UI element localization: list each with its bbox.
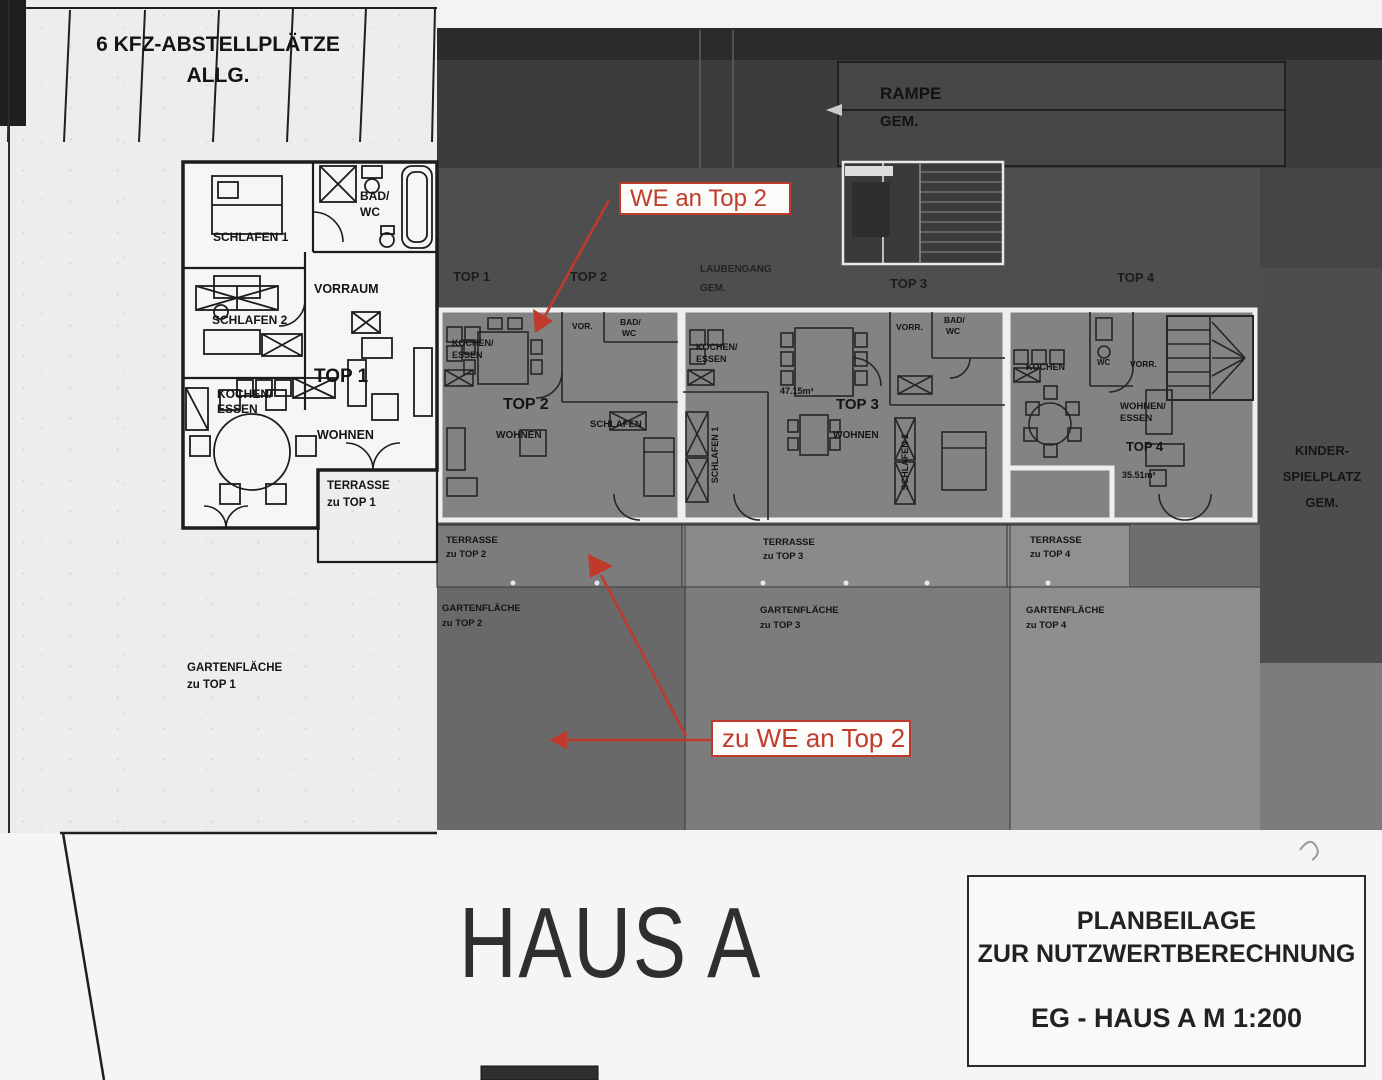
top4-terrasse-label-l1: TERRASSE [1030,536,1082,547]
band-label-top3: TOP 3 [890,277,927,292]
playground-label-line3: GEM. [1262,496,1382,511]
top4-terrasse-label-l2: zu TOP 4 [1030,550,1070,561]
ramp-label: RAMPE [880,84,941,104]
band-label-top1: TOP 1 [453,270,490,285]
top1-wc-label: WC [360,206,380,220]
annotation-zu-we-an-top2-text: zu WE an Top 2 [722,723,905,754]
stairwell-block [843,162,1003,264]
top4-wohnen-label: WOHNEN/ [1120,402,1166,413]
parking-label-line1: 6 KFZ-ABSTELLPLÄTZE [88,33,348,57]
top4-kochen-label: KOCHEN [1026,362,1065,372]
top1-schlafen1-label: SCHLAFEN 1 [213,231,288,245]
playground-label-line2: SPIELPLATZ [1262,470,1382,485]
title-block: PLANBEILAGE ZUR NUTZWERTBERECHNUNG EG - … [967,875,1366,1067]
top3-terrasse-label-l1: TERRASSE [763,538,815,549]
top3-schlafen1-label: SCHLAFEN 1 [710,427,720,484]
top1-terrasse-label-l2: zu TOP 1 [327,497,376,510]
top3-bad-label: BAD/ [944,316,965,326]
top4-area-label: 35.51m² [1122,470,1156,480]
annotation-zu-we-an-top2: zu WE an Top 2 [711,720,911,757]
top3-schlafen2-label: SCHLAFEN 2 [900,434,910,491]
top2-schlafen-label: SCHLAFEN [590,420,642,431]
band-label-top4: TOP 4 [1117,271,1154,286]
top4-essen-label: ESSEN [1120,414,1152,425]
annotation-we-an-top2: WE an Top 2 [619,182,791,215]
top2-kochen-label: KOCHEN/ [452,338,494,348]
top1-unit-label: TOP 1 [314,366,368,388]
band-label-top2: TOP 2 [570,270,607,285]
top4-unit-label: TOP 4 [1126,440,1163,455]
top4-garten-label-l1: GARTENFLÄCHE [1026,606,1105,617]
ramp-type-label: GEM. [880,113,918,130]
top3-vorr-label: VORR. [896,323,923,333]
top1-wohnen-label: WOHNEN [317,428,374,442]
apartment-top1-outline [183,162,437,562]
top1-vorraum-label: VORRAUM [314,282,379,296]
top1-kochen-label: KOCHEN/ [217,388,272,402]
top1-garten-label-l2: zu TOP 1 [187,679,236,692]
top2-unit-label: TOP 2 [503,396,549,414]
top2-essen-label: ESSEN [452,350,483,360]
top3-essen-label: ESSEN [696,354,727,364]
top4-wc-label: WC [1097,358,1110,367]
top2-terrasse-label-l2: zu TOP 2 [446,550,486,561]
top1-schlafen2-label: SCHLAFEN 2 [212,314,287,328]
playground-label-line1: KINDER- [1262,444,1382,459]
top1-bad-label: BAD/ [360,190,389,204]
top3-wohnen-label: WOHNEN [833,430,879,442]
scanned-floor-plan-page: 6 KFZ-ABSTELLPLÄTZE ALLG. RAMPE GEM. LAU… [0,0,1382,1080]
house-title: HAUS A [459,886,762,1001]
top2-terrasse-label-l1: TERRASSE [446,536,498,547]
top2-wohnen-label: WOHNEN [496,430,542,442]
top3-kochen-label: KOCHEN/ [696,342,738,352]
parking-label-line2: ALLG. [88,64,348,88]
annotation-we-an-top2-text: WE an Top 2 [630,185,767,213]
top3-garten-label-l2: zu TOP 3 [760,621,800,632]
top2-wc-label: WC [622,329,636,339]
top2-vor-label: VOR. [572,322,593,332]
top2-garten-label-l2: zu TOP 2 [442,619,482,630]
top1-terrasse-label-l1: TERRASSE [327,480,390,493]
top3-area-label: 47.15m² [780,386,814,396]
top4-vorr-label: VORR. [1130,360,1157,370]
title-block-line3: EG - HAUS A M 1:200 [969,1003,1364,1034]
title-block-line2: ZUR NUTZWERTBERECHNUNG [969,940,1364,969]
top3-garten-label-l1: GARTENFLÄCHE [760,606,839,617]
top3-unit-label: TOP 3 [836,396,879,413]
top3-terrasse-label-l2: zu TOP 3 [763,552,803,563]
title-block-line1: PLANBEILAGE [969,907,1364,936]
top4-garten-label-l2: zu TOP 4 [1026,621,1066,632]
top2-bad-label: BAD/ [620,318,641,328]
top2-garten-label-l1: GARTENFLÄCHE [442,604,521,615]
top1-essen-label: ESSEN [217,403,258,417]
corridor-type-label: GEM. [700,283,726,295]
top3-wc-label: WC [946,327,960,337]
corridor-label: LAUBENGANG [700,264,772,276]
top1-garten-label-l1: GARTENFLÄCHE [187,662,282,675]
